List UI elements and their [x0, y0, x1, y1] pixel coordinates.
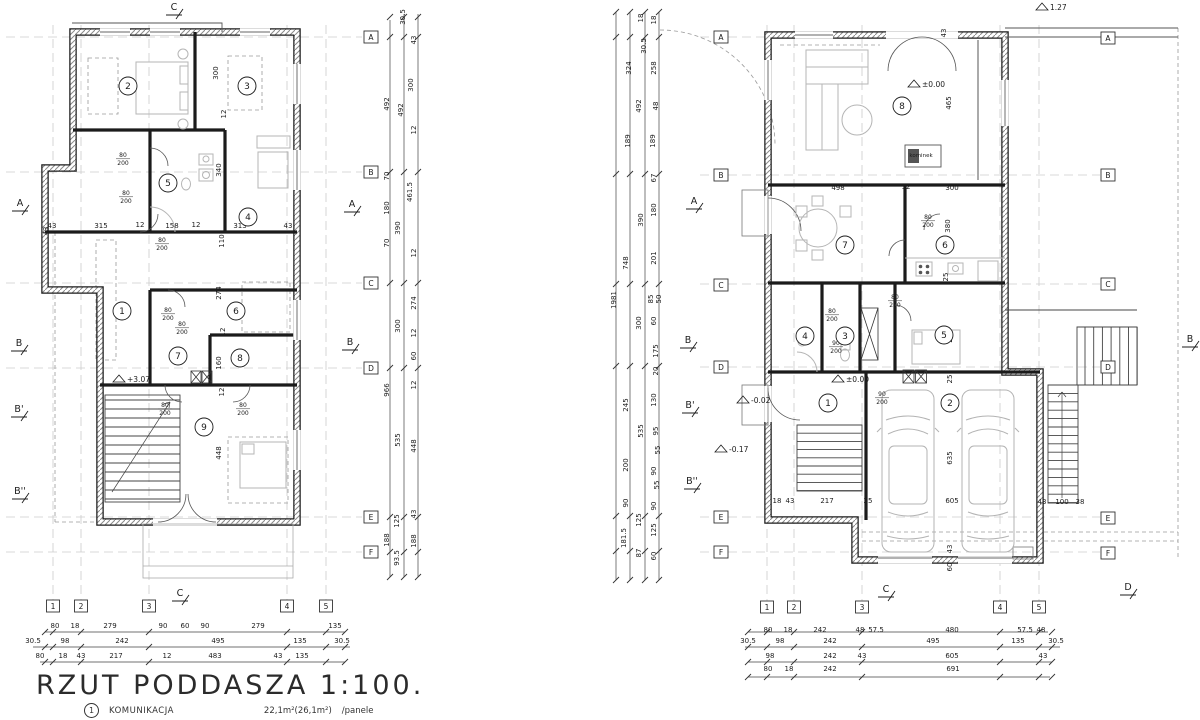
- dim-label: 18: [637, 14, 645, 23]
- legend-room-name: KOMUNIKACJA: [109, 706, 174, 716]
- room-number: 9: [201, 423, 207, 433]
- room-number: 6: [233, 307, 239, 317]
- dim-label: 605: [945, 497, 958, 505]
- dim-label: 189: [649, 134, 657, 147]
- door-size-label: 200: [889, 302, 901, 309]
- crossed-box-x: [861, 308, 878, 360]
- dim-label: 90: [622, 499, 630, 508]
- dim-label: 300: [635, 316, 643, 329]
- grid-axis-number: 3: [147, 602, 152, 611]
- dim-label: 300: [212, 66, 220, 79]
- door-size-label: 200: [237, 410, 249, 417]
- dim-label: 324: [625, 61, 633, 75]
- door-size-label: 200: [156, 245, 168, 252]
- dim-label: 217: [109, 652, 122, 660]
- dim-label: 535: [637, 424, 645, 437]
- dim-label: 175: [652, 344, 660, 357]
- dim-label: 43: [1039, 652, 1048, 660]
- dim-label: 300: [394, 319, 402, 332]
- dim-label: 18: [71, 622, 80, 630]
- dim-tick: [387, 14, 393, 20]
- dim-label: 125: [393, 514, 401, 527]
- room-number: 5: [941, 331, 947, 341]
- dim-label: 60: [181, 622, 190, 630]
- dim-label: 30.5: [1048, 637, 1064, 645]
- dim-label: 93.5: [393, 550, 401, 566]
- grid-axis-label: D: [368, 364, 374, 373]
- dim-label: 60: [410, 352, 418, 361]
- dim-label: 43: [274, 652, 283, 660]
- dim-label: 80: [51, 622, 60, 630]
- dim-label: 242: [115, 637, 128, 645]
- room-number: 4: [245, 213, 251, 223]
- door-size-label: 80: [828, 308, 836, 315]
- grid-axis-label: F: [369, 548, 373, 557]
- elevation-marker: +3.07: [127, 375, 150, 384]
- dim-label: 43: [940, 29, 948, 38]
- car-trunk-line: [967, 536, 1009, 539]
- grid-axis-label: E: [719, 513, 724, 522]
- door-size-label: 80: [178, 321, 186, 328]
- grid-axis-label: C: [368, 279, 373, 288]
- elevation-symbol: [908, 80, 920, 87]
- door-size-label: 200: [176, 329, 188, 336]
- grid-axis-label: B: [1105, 171, 1110, 180]
- dim-label: 57.5: [1017, 626, 1033, 634]
- grid-axis-label: B: [718, 171, 723, 180]
- room-number: 7: [175, 352, 181, 362]
- dim-label: 1981: [610, 291, 618, 309]
- dim-label: 242: [813, 626, 826, 634]
- grid-axis-label: A: [368, 33, 374, 42]
- grid-axis-label: A: [718, 33, 724, 42]
- dim-label: 43: [284, 222, 293, 230]
- right-plan-walls: [768, 28, 1178, 560]
- dim-label: 498: [831, 184, 844, 192]
- dim-label: 135: [1011, 637, 1024, 645]
- door-size-label: 200: [876, 399, 888, 406]
- dim-label: 18: [773, 497, 782, 505]
- legend-room-number: 1: [84, 703, 99, 718]
- car-trunk-line: [887, 536, 929, 539]
- dim-label: 125: [635, 513, 643, 526]
- grid-axis-number: 4: [285, 602, 290, 611]
- dim-label: 87: [635, 549, 643, 558]
- legend-room-area: 22,1m²(26,1m²): [264, 706, 332, 716]
- dim-label: 98: [61, 637, 70, 645]
- dim-label: 495: [211, 637, 224, 645]
- section-marker-label: B': [14, 404, 23, 415]
- room-number: 1: [825, 399, 831, 409]
- dim-label: 30.5: [399, 9, 407, 25]
- dim-label: 90: [201, 622, 210, 630]
- drawing-title: RZUT PODDASZA 1:100.: [36, 670, 424, 701]
- dim-label: 12: [163, 652, 172, 660]
- grid-axis-number: 1: [51, 602, 56, 611]
- dim-label: 300: [407, 78, 415, 91]
- section-marker-label: C: [171, 2, 178, 13]
- room-legend-row: 1 KOMUNIKACJA 22,1m²(26,1m²) /panele: [84, 703, 373, 718]
- room-number: 2: [947, 399, 953, 409]
- elevation-symbol: [113, 375, 125, 382]
- dim-label: 495: [926, 637, 939, 645]
- dim-label: 100: [1055, 498, 1068, 506]
- dim-label: 200: [622, 458, 630, 471]
- section-marker-label: B: [16, 338, 23, 349]
- elevation-marker: ±0.00: [922, 80, 945, 89]
- dim-label: 30.5: [334, 637, 350, 645]
- dim-label: 448: [410, 439, 418, 452]
- dim-label: 57.5: [868, 626, 884, 634]
- dim-label: 43: [946, 545, 954, 554]
- dim-label: 135: [295, 652, 308, 660]
- door-size-label: 80: [239, 402, 247, 409]
- dim-label: 60: [946, 563, 954, 572]
- garage-cars: [877, 390, 1019, 552]
- dim-label: 300: [945, 184, 958, 192]
- door-size-label: 200: [162, 315, 174, 322]
- room-number: 3: [842, 332, 848, 342]
- door-size-label: 80: [891, 294, 899, 301]
- dim-label: 12: [410, 381, 418, 390]
- dim-label: 12: [136, 221, 145, 229]
- door-size-label: 200: [159, 410, 171, 417]
- dim-label: 274: [215, 286, 223, 300]
- dim-label: 258: [650, 61, 658, 74]
- dim-label: 242: [823, 665, 836, 673]
- section-marker-label: B'': [14, 486, 26, 497]
- room-number: 4: [802, 332, 808, 342]
- grid-axis-label: C: [1105, 280, 1110, 289]
- grid-axis-label: C: [718, 281, 723, 290]
- drawing-sheet: { "title_block": { "title": "RZUT PODDAS…: [0, 0, 1200, 720]
- door-size-label: 80: [924, 214, 932, 221]
- dim-label: 90: [650, 467, 658, 476]
- dim-label: 48: [856, 626, 865, 634]
- dim-label: 80: [764, 665, 773, 673]
- dim-label: 188: [383, 533, 391, 546]
- section-marker-label: D: [1124, 582, 1131, 593]
- dim-label: 60: [650, 552, 658, 561]
- dim-label: 30.5: [740, 637, 756, 645]
- hob-dots: [919, 265, 930, 275]
- grid-axis-label: D: [718, 363, 724, 372]
- dim-label: 181.5: [620, 528, 628, 548]
- grid-axis-label: F: [719, 548, 723, 557]
- door-size-label: 80: [161, 402, 169, 409]
- grid-axis-label: E: [369, 513, 374, 522]
- grid-axis-number: 2: [79, 602, 84, 611]
- door-size-label: 200: [830, 348, 842, 355]
- text-label: kominek: [909, 153, 933, 159]
- dim-label: 25: [864, 497, 873, 505]
- door-size-label: 200: [922, 222, 934, 229]
- elevation-symbol: [715, 445, 727, 452]
- room-number: 8: [899, 102, 905, 112]
- dim-label: 43: [42, 227, 50, 236]
- room-number: 7: [842, 241, 848, 251]
- grid-axis-label: E: [1106, 514, 1111, 523]
- elevation-marker: -0.17: [729, 445, 749, 454]
- dim-label: 242: [823, 652, 836, 660]
- grid-axis-number: 1: [765, 603, 770, 612]
- dim-label: 480: [945, 626, 958, 634]
- dim-label: 60: [650, 317, 658, 326]
- dim-label: 48: [1037, 626, 1046, 634]
- dim-label: 18: [650, 16, 658, 25]
- car-roof: [969, 446, 1007, 504]
- elevation-marker: ±0.00: [846, 375, 869, 384]
- grid-axis-number: 2: [792, 603, 797, 612]
- dim-label: 461.5: [406, 182, 414, 202]
- dim-label: 30.5: [25, 637, 41, 645]
- dim-label: 90: [650, 502, 658, 511]
- section-marker-label: C: [883, 584, 890, 595]
- dim-label: 67: [650, 174, 658, 183]
- grid-axis-label: F: [1106, 549, 1110, 558]
- grid-axis-number: 3: [860, 603, 865, 612]
- dim-label: 160: [215, 356, 223, 369]
- door-size-label: 200: [117, 160, 129, 167]
- section-marker-label: A: [17, 198, 24, 209]
- dim-label: 188: [410, 534, 418, 547]
- dim-label: 274: [410, 296, 418, 310]
- grid-axis-label: B: [368, 168, 373, 177]
- grid-axis-label: D: [1105, 363, 1111, 372]
- dim-label: 80: [36, 652, 45, 660]
- dim-label: 390: [394, 221, 402, 234]
- door-size-label: 90: [878, 391, 886, 398]
- section-marker-label: B'': [686, 476, 698, 487]
- door-size-label: 200: [120, 198, 132, 205]
- room-number: 2: [125, 82, 131, 92]
- dim-label: 55: [654, 446, 662, 455]
- dim-label: 217: [820, 497, 833, 505]
- section-marker-label: C: [177, 588, 184, 599]
- car-outline: [962, 390, 1014, 552]
- dim-label: 201: [650, 251, 658, 264]
- dim-label: 43: [858, 652, 867, 660]
- grid-axis-number: 5: [1037, 603, 1042, 612]
- car-rear-window: [888, 512, 928, 516]
- door-size-label: 80: [164, 307, 172, 314]
- dim-label: 966: [383, 383, 391, 397]
- dim-label: 492: [635, 99, 643, 112]
- floorplan-canvas: 30.5434923004921270461.51803907012274300…: [0, 0, 1200, 720]
- room-number: 6: [942, 241, 948, 251]
- door-size-label: 80: [119, 152, 127, 159]
- room-number: 1: [119, 307, 125, 317]
- section-marker-label: B: [685, 335, 692, 346]
- door-size-label: 80: [158, 237, 166, 244]
- dim-label: 55: [653, 481, 661, 490]
- dim-label: 605: [945, 652, 958, 660]
- dim-label: 12: [410, 126, 418, 135]
- grid-axis-number: 4: [998, 603, 1003, 612]
- dim-label: 98: [776, 637, 785, 645]
- section-marker-label: B: [1187, 334, 1194, 345]
- dim-label: 85: [647, 295, 655, 304]
- dim-label: 43: [410, 36, 418, 45]
- dim-label: 315: [94, 222, 107, 230]
- dim-label: 12: [902, 183, 911, 191]
- dim-label: 80: [764, 626, 773, 634]
- left-plan-openings: [100, 28, 301, 525]
- car-windshield: [968, 429, 1008, 434]
- dim-label: 25: [942, 273, 950, 282]
- car-outline: [882, 390, 934, 552]
- dim-label: 180: [383, 201, 391, 214]
- dim-label: 18: [785, 665, 794, 673]
- dim-label: 18: [59, 652, 68, 660]
- dim-label: 125: [650, 523, 658, 536]
- dim-label: 635: [946, 451, 954, 464]
- dim-label: 279: [103, 622, 116, 630]
- dim-label: 279: [251, 622, 264, 630]
- dim-label: 492: [383, 97, 391, 110]
- dim-label: 535: [394, 433, 402, 446]
- dim-label: 483: [208, 652, 221, 660]
- dim-label: 43: [410, 510, 418, 519]
- dim-label: 50: [655, 295, 663, 304]
- dim-label: 43: [1038, 498, 1047, 506]
- car-rear-window: [968, 512, 1008, 516]
- car-roof: [889, 446, 927, 504]
- dim-label: 748: [622, 256, 630, 269]
- dim-label: 135: [328, 622, 341, 630]
- dim-label: 691: [946, 665, 959, 673]
- elevation-symbol: [832, 375, 844, 382]
- room-number: 8: [237, 354, 243, 364]
- dim-label: 180: [650, 203, 658, 216]
- dim-label: 18: [784, 626, 793, 634]
- dim-label: 20: [652, 367, 660, 376]
- section-marker-label: A: [691, 196, 698, 207]
- legend-room-finish: /panele: [342, 706, 374, 716]
- dim-label: 390: [637, 213, 645, 226]
- dim-label: 25: [946, 375, 954, 384]
- dim-label: 95: [652, 427, 660, 436]
- dim-label: 158: [165, 222, 178, 230]
- dim-label: 90: [159, 622, 168, 630]
- crossed-box-x: [191, 371, 201, 383]
- dim-label: 242: [823, 637, 836, 645]
- dim-label: 38: [1076, 498, 1085, 506]
- dim-label: 70: [383, 172, 391, 181]
- elevation-marker: -0.02: [751, 396, 771, 405]
- grid-axis-label: A: [1105, 34, 1111, 43]
- dim-label: 98: [766, 652, 775, 660]
- section-marker-label: A: [349, 199, 356, 210]
- dim-label: 12: [410, 329, 418, 338]
- dim-label: 135: [293, 637, 306, 645]
- room-number: 3: [244, 82, 250, 92]
- dim-label: 43: [786, 497, 795, 505]
- elevation-symbol: [1036, 3, 1048, 10]
- grid-axis-number: 5: [324, 602, 329, 611]
- right-plan-openings: [764, 31, 1012, 563]
- dim-label: 70: [383, 239, 391, 248]
- section-marker-label: B': [685, 400, 694, 411]
- dim-tick: [1049, 629, 1055, 635]
- door-size-label: 80: [122, 190, 130, 197]
- dim-label: 465: [945, 96, 953, 109]
- left-plan-walls: [45, 23, 297, 522]
- dim-label: 12: [219, 328, 227, 337]
- dim-label: 189: [624, 134, 632, 147]
- dim-label: 43: [77, 652, 86, 660]
- dim-label: 12: [410, 249, 418, 258]
- car-windshield: [888, 429, 928, 434]
- elevation-marker: 1.27: [1050, 3, 1067, 12]
- dim-label: 340: [215, 163, 223, 176]
- section-marker-label: B: [347, 337, 354, 348]
- dim-label: 30.5: [640, 38, 648, 54]
- dim-label: 12: [220, 110, 228, 119]
- car-hood-line: [886, 416, 930, 420]
- elevation-symbol: [737, 396, 749, 403]
- dim-label: 48: [652, 102, 660, 111]
- dim-label: 12: [218, 388, 226, 397]
- dim-label: 110: [218, 234, 226, 247]
- dim-label: 12: [192, 221, 201, 229]
- room-number: 5: [165, 179, 171, 189]
- dim-label: 448: [215, 446, 223, 459]
- car-hood-line: [966, 416, 1010, 420]
- dim-label: 245: [622, 398, 630, 411]
- door-size-label: 200: [826, 316, 838, 323]
- dim-label: 492: [397, 103, 405, 116]
- dim-label: 130: [650, 393, 658, 406]
- dim-label: 380: [944, 219, 952, 232]
